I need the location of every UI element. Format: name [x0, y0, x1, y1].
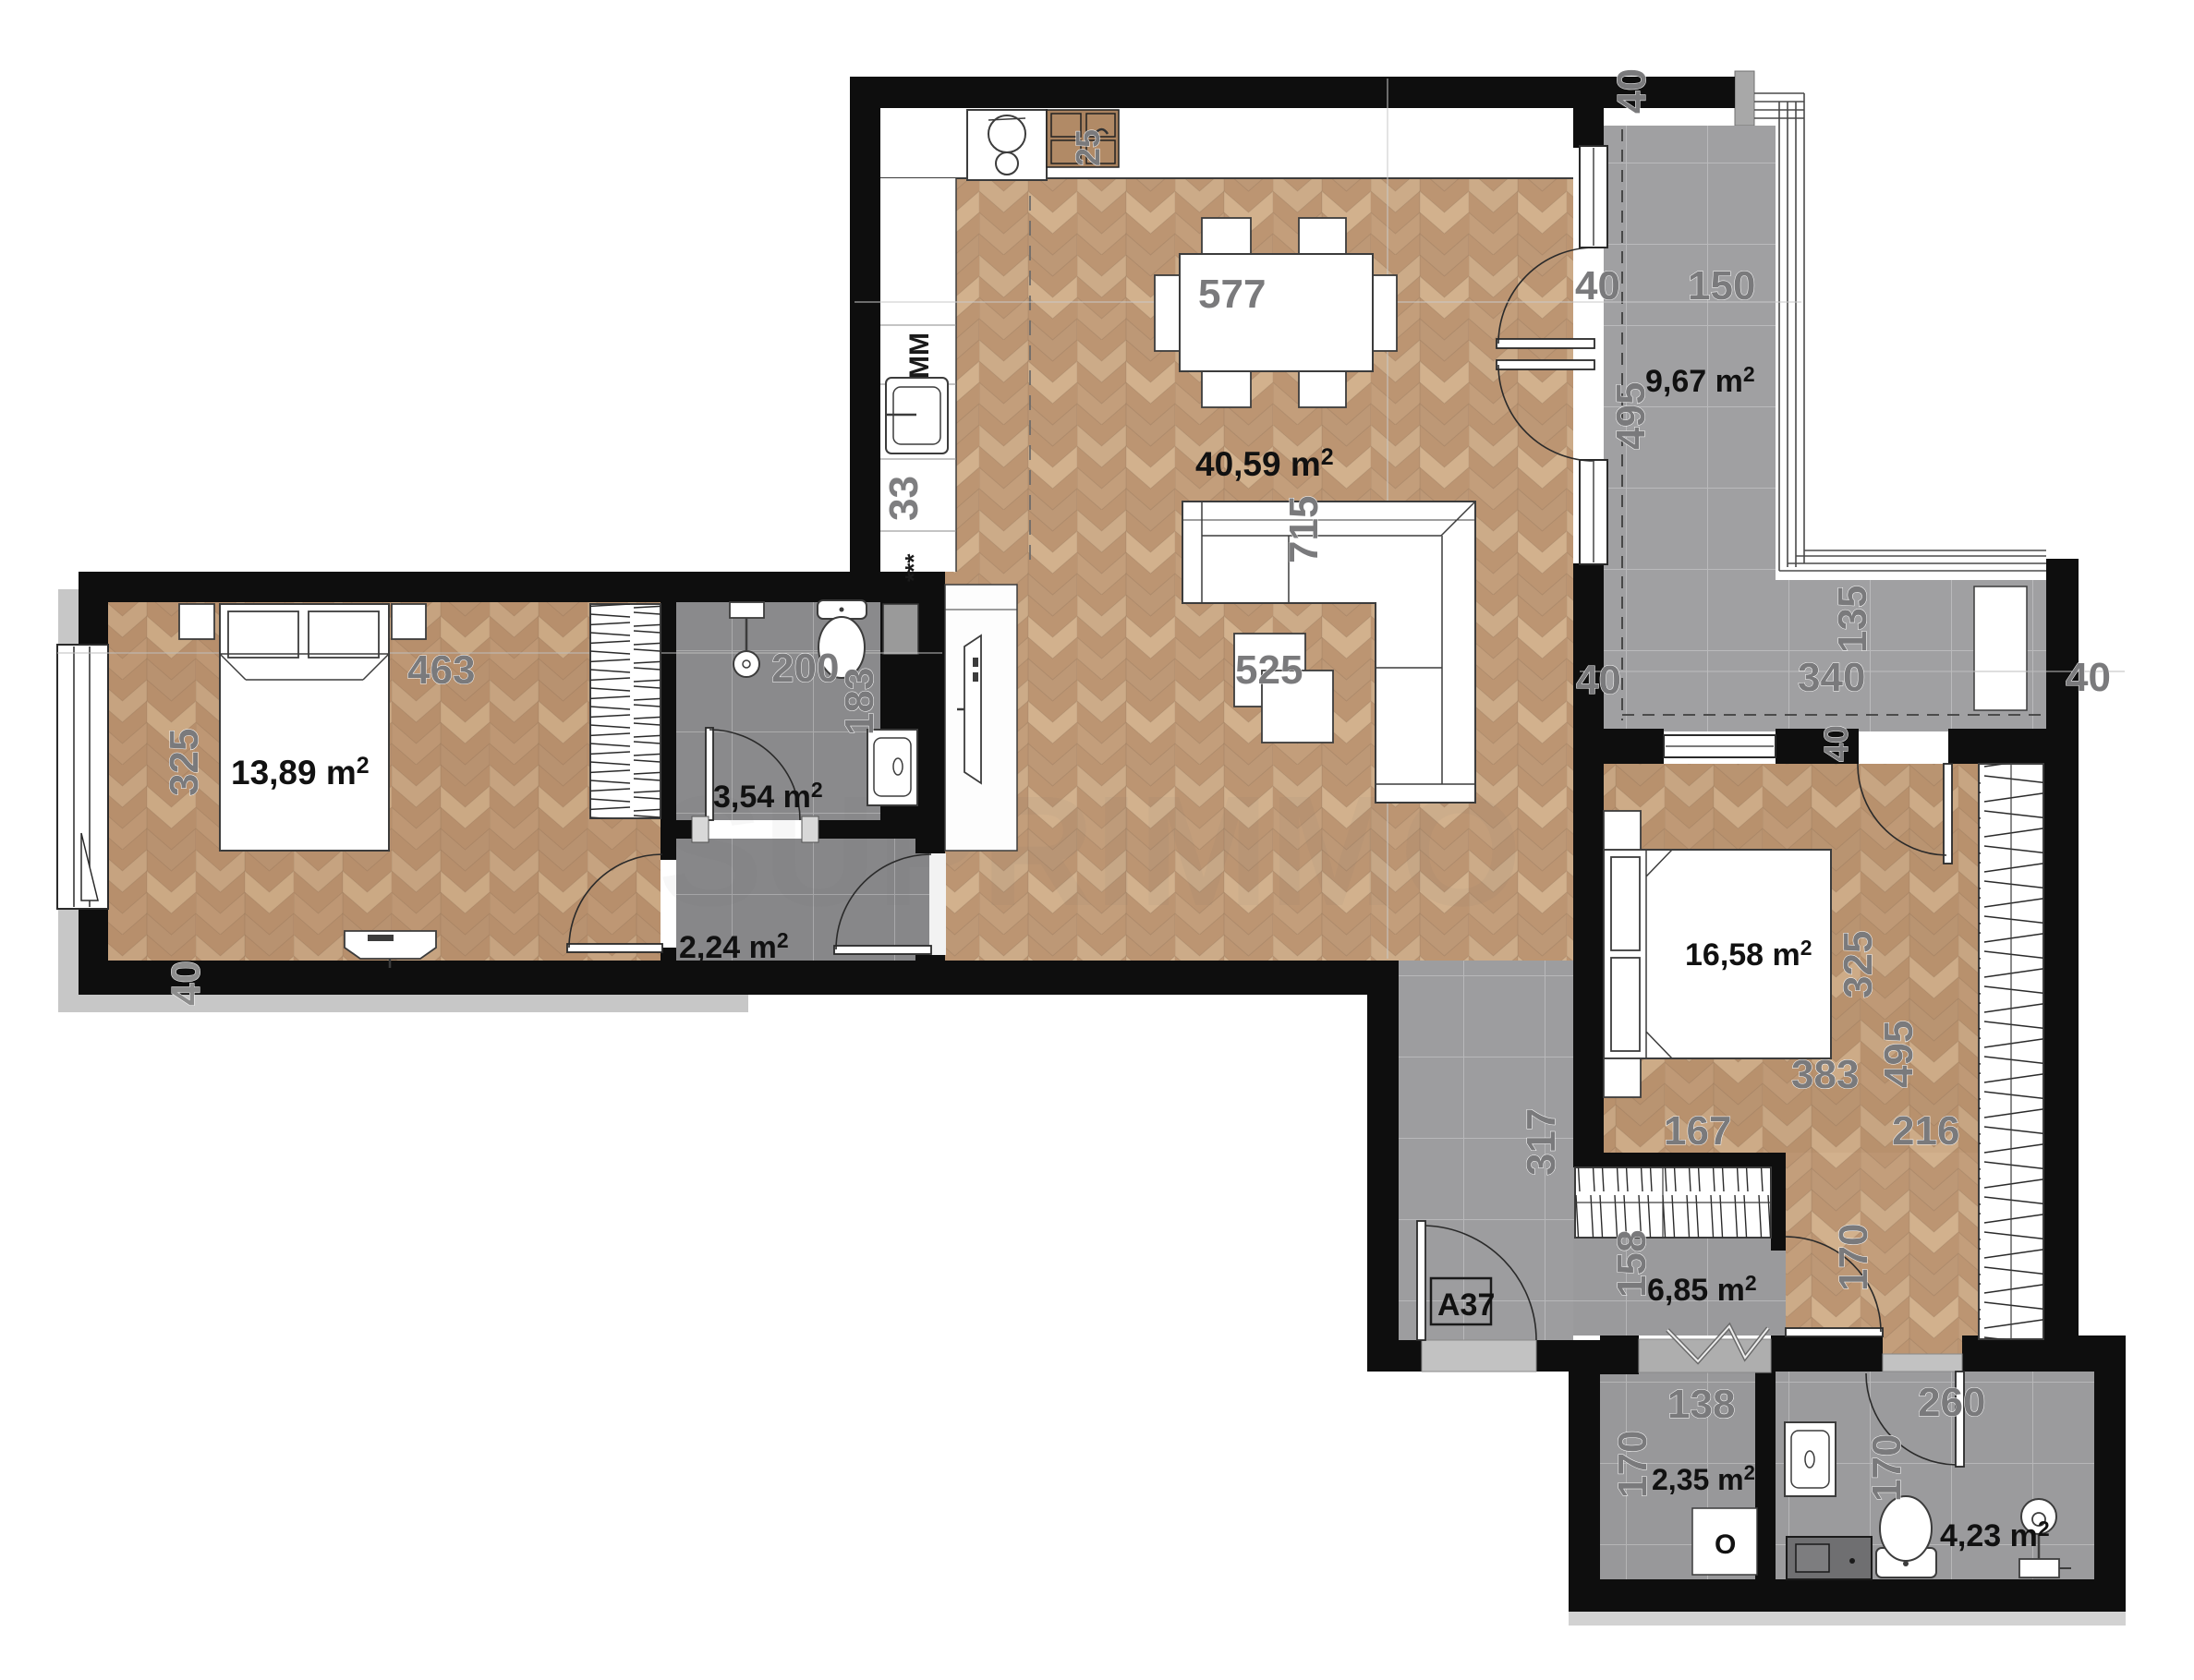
svg-text:183: 183 — [837, 668, 882, 735]
svg-text:MM: MM — [904, 332, 935, 379]
svg-text:317: 317 — [1519, 1108, 1564, 1176]
svg-text:135: 135 — [1830, 586, 1875, 653]
svg-text:40: 40 — [1817, 725, 1855, 762]
svg-text:715: 715 — [1281, 496, 1327, 563]
svg-text:170: 170 — [1610, 1431, 1655, 1498]
svg-text:40: 40 — [1575, 263, 1620, 308]
svg-text:260: 260 — [1918, 1380, 1985, 1425]
svg-text:325: 325 — [162, 729, 207, 796]
svg-text:40: 40 — [1576, 658, 1621, 703]
svg-text:9,67 m2: 9,67 m2 — [1645, 362, 1755, 399]
svg-text:525: 525 — [1235, 647, 1303, 693]
svg-text:495: 495 — [1876, 1021, 1921, 1088]
svg-text:138: 138 — [1667, 1382, 1735, 1427]
svg-text:16,58 m2: 16,58 m2 — [1685, 936, 1812, 973]
svg-text:3,54 m2: 3,54 m2 — [713, 778, 823, 815]
svg-text:***: *** — [900, 553, 927, 582]
svg-text:40: 40 — [2066, 655, 2111, 700]
svg-text:325: 325 — [1836, 931, 1881, 998]
svg-text:13,89 m2: 13,89 m2 — [231, 753, 370, 792]
svg-text:6,85 m2: 6,85 m2 — [1647, 1271, 1757, 1308]
svg-text:577: 577 — [1198, 272, 1266, 317]
svg-text:33: 33 — [881, 476, 927, 521]
svg-text:340: 340 — [1798, 655, 1865, 700]
svg-text:40,59 m2: 40,59 m2 — [1195, 444, 1334, 483]
svg-text:383: 383 — [1791, 1052, 1859, 1097]
svg-text:O: O — [1715, 1529, 1736, 1560]
svg-text:40: 40 — [1609, 68, 1655, 114]
svg-text:170: 170 — [1831, 1224, 1876, 1291]
svg-text:2,24 m2: 2,24 m2 — [679, 928, 789, 965]
svg-text:170: 170 — [1864, 1434, 1909, 1502]
svg-text:200: 200 — [771, 646, 839, 691]
svg-text:167: 167 — [1664, 1108, 1731, 1154]
svg-text:2,35 m2: 2,35 m2 — [1652, 1461, 1755, 1496]
svg-text:4,23 m2: 4,23 m2 — [1940, 1517, 2050, 1553]
svg-text:158: 158 — [1609, 1230, 1655, 1298]
svg-text:216: 216 — [1892, 1108, 1959, 1154]
svg-text:40: 40 — [164, 961, 209, 1006]
svg-text:463: 463 — [407, 647, 475, 693]
svg-text:25: 25 — [1069, 129, 1107, 166]
svg-text:150: 150 — [1688, 263, 1755, 308]
svg-text:495: 495 — [1608, 382, 1654, 450]
svg-text:A37: A37 — [1437, 1287, 1495, 1323]
